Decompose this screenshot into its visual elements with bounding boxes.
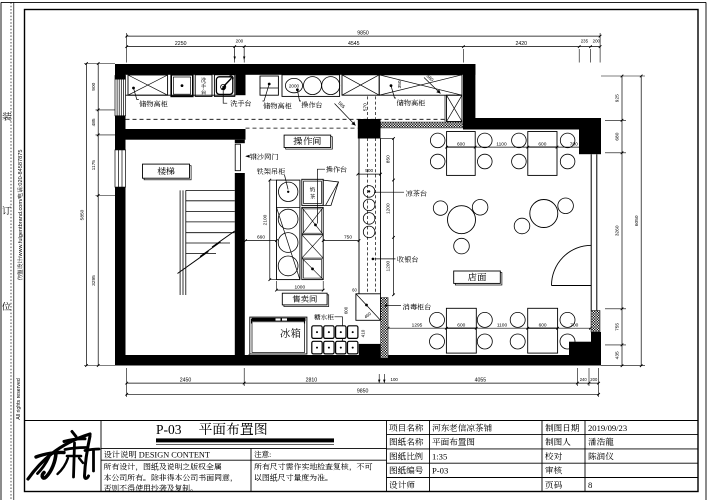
svg-text:1:35: 1:35 (432, 451, 447, 461)
svg-text:1100: 1100 (496, 141, 507, 147)
svg-text:订: 订 (2, 206, 12, 217)
svg-text:位: 位 (1, 301, 12, 313)
svg-text:600: 600 (344, 306, 349, 314)
svg-text:店面: 店面 (468, 273, 487, 284)
svg-text:图纸比例: 图纸比例 (389, 450, 424, 461)
svg-text:图纸名称: 图纸名称 (389, 436, 424, 447)
svg-text:900: 900 (91, 82, 97, 90)
svg-text:P-03: P-03 (156, 422, 182, 437)
svg-text:660: 660 (257, 235, 265, 241)
svg-text:200: 200 (593, 39, 601, 44)
svg-text:680: 680 (615, 132, 621, 140)
svg-text:1200: 1200 (386, 260, 392, 271)
svg-text:校对: 校对 (544, 451, 563, 461)
svg-text:操作间: 操作间 (292, 137, 321, 148)
svg-text:注意:: 注意: (254, 450, 271, 459)
svg-text:仿盟设计/www.fulgentbrand.com/电话:0: 仿盟设计/www.fulgentbrand.com/电话:020-8458787… (17, 150, 24, 281)
svg-text:P-03: P-03 (432, 466, 448, 476)
svg-text:9850: 9850 (357, 389, 369, 395)
svg-text:冰箱: 冰箱 (280, 328, 301, 340)
svg-text:所有设计，图纸及说明之版权全属: 所有设计，图纸及说明之版权全属 (104, 461, 222, 471)
svg-text:850: 850 (386, 155, 392, 163)
svg-text:本公司所有。除非得本公司书面同意，: 本公司所有。除非得本公司书面同意， (104, 472, 238, 482)
svg-text:2810: 2810 (306, 377, 318, 383)
svg-text:1175: 1175 (91, 160, 97, 171)
svg-text:台: 台 (201, 89, 206, 96)
svg-text:200: 200 (236, 39, 244, 44)
svg-text:2019/09/23: 2019/09/23 (588, 423, 627, 433)
svg-text:平面布置图: 平面布置图 (199, 422, 268, 437)
svg-text:设计师: 设计师 (389, 480, 415, 490)
svg-text:操作台: 操作台 (301, 101, 323, 110)
svg-text:凉茶台: 凉茶台 (406, 189, 428, 198)
svg-text:3295: 3295 (91, 275, 97, 286)
svg-text:240: 240 (580, 377, 588, 382)
svg-text:60: 60 (352, 288, 357, 293)
svg-text:储物高柜: 储物高柜 (139, 100, 168, 109)
svg-text:750: 750 (344, 235, 352, 241)
svg-text:435: 435 (615, 351, 621, 359)
svg-text:手: 手 (201, 83, 207, 90)
svg-text:410: 410 (361, 329, 366, 337)
svg-text:485: 485 (91, 118, 97, 126)
svg-text:以图纸尺寸量度为准。: 以图纸尺寸量度为准。 (254, 472, 333, 482)
svg-text:All rights reserved: All rights reserved (16, 378, 22, 420)
svg-text:2420: 2420 (516, 41, 528, 47)
svg-text:8: 8 (588, 480, 592, 490)
svg-text:100: 100 (391, 377, 399, 382)
svg-text:储物高柜: 储物高柜 (397, 99, 426, 108)
svg-text:楼梯: 楼梯 (157, 166, 175, 176)
svg-text:6050: 6050 (634, 215, 640, 226)
svg-text:洗手台: 洗手台 (230, 99, 252, 108)
svg-text:235: 235 (581, 39, 589, 44)
svg-text:200: 200 (590, 377, 598, 382)
svg-text:所有尺寸需作实地检查复核，不可: 所有尺寸需作实地检查复核，不可 (254, 462, 372, 471)
svg-text:制图日期: 制图日期 (545, 423, 580, 433)
svg-text:600: 600 (539, 322, 547, 328)
svg-text:河东老信凉茶铺: 河东老信凉茶铺 (432, 423, 493, 433)
svg-text:茶: 茶 (309, 194, 316, 201)
svg-text:制图人: 制图人 (545, 437, 571, 447)
svg-text:铁架吊柜: 铁架吊柜 (257, 167, 286, 176)
svg-text:4055: 4055 (475, 377, 487, 383)
svg-text:陈润仪: 陈润仪 (588, 451, 614, 461)
svg-text:洗: 洗 (201, 77, 207, 84)
svg-text:操作台: 操作台 (326, 165, 348, 174)
svg-text:1000: 1000 (294, 284, 305, 290)
svg-text:否则不得使用抄袭及复制。: 否则不得使用抄袭及复制。 (104, 484, 199, 493)
svg-text:项目名称: 项目名称 (389, 423, 424, 433)
svg-text:600: 600 (457, 322, 465, 328)
svg-text:2100: 2100 (262, 214, 268, 225)
svg-text:2250: 2250 (175, 41, 187, 47)
svg-text:糖水柜: 糖水柜 (314, 313, 334, 321)
svg-text:收银台: 收银台 (397, 255, 419, 264)
svg-text:3260: 3260 (615, 225, 621, 236)
svg-text:1100: 1100 (497, 322, 508, 328)
svg-text:570: 570 (362, 103, 368, 111)
svg-text:装: 装 (2, 111, 12, 123)
svg-text:600: 600 (457, 141, 465, 147)
svg-text:350: 350 (397, 80, 403, 88)
svg-text:消毒柜台: 消毒柜台 (403, 303, 432, 312)
svg-text:755: 755 (615, 323, 621, 331)
svg-text:700: 700 (570, 141, 578, 147)
svg-text:页码: 页码 (544, 480, 563, 490)
svg-text:图纸编号: 图纸编号 (389, 465, 424, 476)
svg-text:4545: 4545 (348, 41, 360, 47)
svg-text:700: 700 (570, 322, 578, 328)
svg-text:500: 500 (365, 168, 373, 174)
svg-text:5850: 5850 (79, 209, 85, 220)
svg-text:钢沙网门: 钢沙网门 (250, 152, 280, 161)
svg-text:2450: 2450 (180, 377, 192, 383)
svg-text:平面布置图: 平面布置图 (432, 437, 475, 447)
svg-text:2000: 2000 (289, 83, 300, 88)
svg-text:1200: 1200 (386, 203, 392, 214)
svg-text:925: 925 (615, 94, 621, 102)
svg-text:1295: 1295 (412, 322, 423, 328)
svg-text:9850: 9850 (357, 31, 369, 37)
svg-text:储物高柜: 储物高柜 (263, 101, 292, 110)
svg-text:奶: 奶 (309, 187, 316, 194)
svg-text:潘浩龍: 潘浩龍 (588, 437, 614, 447)
svg-text:售卖间: 售卖间 (292, 294, 318, 304)
svg-text:设计说明 DESIGN CONTENT: 设计说明 DESIGN CONTENT (104, 450, 210, 459)
svg-text:审核: 审核 (545, 466, 563, 476)
svg-text:600: 600 (538, 141, 546, 147)
